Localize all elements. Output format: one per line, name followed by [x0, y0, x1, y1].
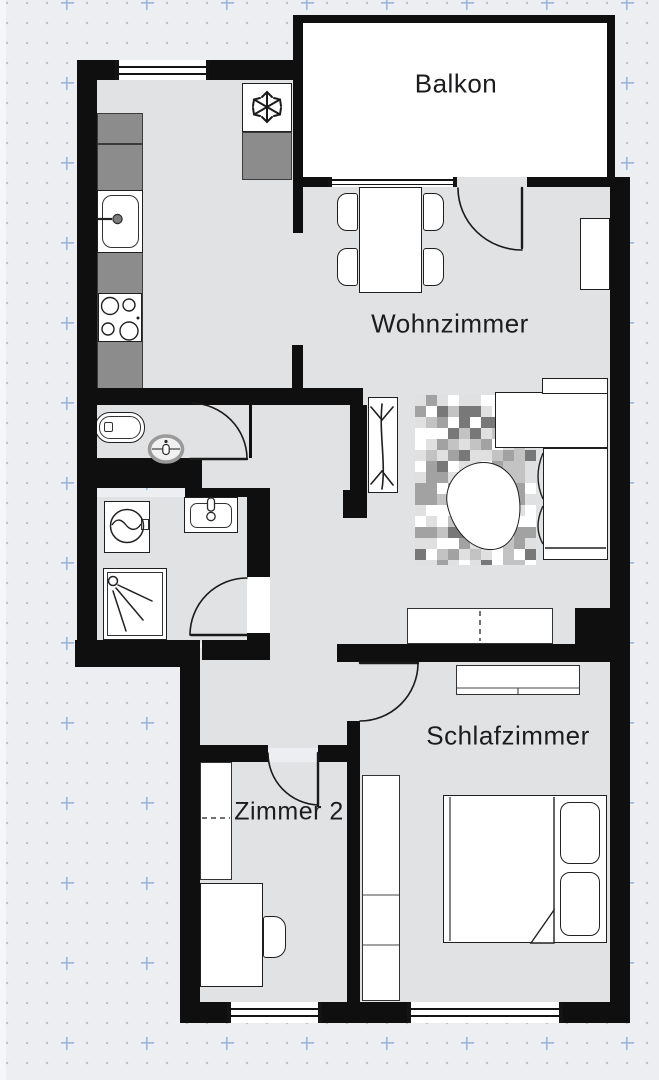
- wall-segment: [77, 60, 115, 80]
- grid-plus: [61, 237, 74, 250]
- grid-plus: [381, 0, 394, 10]
- balcony-floor: [303, 23, 607, 177]
- grid-plus: [61, 957, 74, 970]
- grid-plus: [61, 557, 74, 570]
- wall-segment: [527, 177, 610, 187]
- wall-segment: [293, 15, 303, 233]
- wall-segment: [200, 745, 268, 762]
- grid-plus: [461, 0, 474, 10]
- pillow: [560, 802, 600, 864]
- stove: [98, 293, 142, 342]
- toilet-flush: [104, 422, 113, 432]
- wall-segment: [295, 15, 615, 23]
- zimmer2-wardrobe: [200, 762, 232, 880]
- page-edge: [0, 0, 6, 1080]
- grid-plus: [381, 1037, 394, 1050]
- wall-segment: [322, 1002, 407, 1023]
- wall-segment: [77, 60, 97, 667]
- grid-plus: [141, 877, 154, 890]
- wall-segment: [610, 177, 630, 1023]
- floorplan-canvas: Balkon Wohnzimmer Schlafzimmer Zimmer 2: [0, 0, 659, 1080]
- wall-segment: [292, 345, 303, 388]
- grid-plus: [301, 0, 314, 10]
- bathroom-door-opening: [247, 577, 270, 633]
- wall-segment: [77, 458, 202, 488]
- desk: [200, 883, 263, 987]
- grid-plus: [61, 0, 74, 10]
- grid-plus: [621, 1037, 634, 1050]
- fridge-freezer: [242, 83, 292, 132]
- plant-shelf: [368, 397, 398, 493]
- window: [407, 1002, 563, 1023]
- wall-segment: [575, 608, 610, 648]
- grid-plus: [61, 317, 74, 330]
- window: [227, 1002, 322, 1023]
- wall-segment: [563, 1002, 630, 1023]
- wall-segment: [77, 388, 363, 405]
- grid-plus: [221, 1037, 234, 1050]
- desk-chair: [263, 916, 286, 958]
- grid-plus: [541, 0, 554, 10]
- grid-plus: [61, 717, 74, 730]
- bedroom-wardrobe: [362, 775, 400, 1001]
- room-label-schlafzimmer: Schlafzimmer: [426, 721, 589, 752]
- grid-plus: [141, 1037, 154, 1050]
- wall-segment: [249, 402, 252, 458]
- window: [328, 177, 457, 187]
- wall-segment: [202, 640, 270, 660]
- wall-segment: [343, 490, 367, 518]
- room-label-zimmer2: Zimmer 2: [234, 798, 344, 827]
- wall-segment: [297, 177, 328, 187]
- grid-plus: [141, 0, 154, 10]
- window: [115, 60, 210, 80]
- grid-plus: [621, 157, 634, 170]
- dresser: [456, 665, 580, 695]
- pillow: [560, 872, 600, 936]
- grid-plus: [61, 797, 74, 810]
- wall-segment: [180, 660, 200, 1023]
- room-label-balkon: Balkon: [415, 69, 498, 100]
- dining-table: [359, 187, 422, 293]
- wall-segment: [337, 644, 610, 662]
- wall-segment: [180, 1002, 227, 1023]
- grid-plus: [61, 77, 74, 90]
- grid-plus: [301, 1037, 314, 1050]
- wall-segment: [607, 15, 615, 185]
- wall-segment: [247, 488, 270, 577]
- dining-chair: [423, 193, 444, 231]
- grid-plus: [461, 1037, 474, 1050]
- sofa-back: [542, 378, 608, 394]
- washing-machine-detail: [141, 519, 149, 530]
- bathroom-sink-basin: [190, 503, 232, 528]
- grid-plus: [221, 0, 234, 10]
- shower-tray: [107, 572, 163, 636]
- dining-chair: [423, 248, 444, 286]
- grid-plus: [141, 717, 154, 730]
- grid-plus: [61, 637, 74, 650]
- wall-segment: [350, 405, 367, 495]
- grid-plus: [61, 1037, 74, 1050]
- wall-segment: [210, 60, 303, 80]
- kitchen-sink-basin: [102, 195, 139, 248]
- sideboard: [580, 218, 610, 290]
- grid-plus: [61, 157, 74, 170]
- vestibule-floor: [200, 648, 360, 748]
- grid-plus: [621, 77, 634, 90]
- sofa-seats: [543, 448, 608, 560]
- grid-plus: [621, 0, 634, 10]
- grid-plus: [61, 477, 74, 490]
- dining-chair: [337, 248, 358, 286]
- wc-alcove-floor: [202, 458, 252, 490]
- wall-segment: [347, 721, 360, 1023]
- dining-chair: [337, 193, 358, 231]
- grid-plus: [61, 877, 74, 890]
- sliding-wardrobe: [407, 608, 553, 644]
- grid-plus: [61, 397, 74, 410]
- wall-segment: [318, 745, 347, 762]
- grid-plus: [141, 797, 154, 810]
- kitchen-counter-right: [242, 132, 292, 180]
- grid-plus: [141, 957, 154, 970]
- sofa-chaise: [495, 392, 608, 448]
- room-label-wohnzimmer: Wohnzimmer: [371, 309, 529, 340]
- grid-plus: [541, 1037, 554, 1050]
- counter-divider: [97, 143, 143, 145]
